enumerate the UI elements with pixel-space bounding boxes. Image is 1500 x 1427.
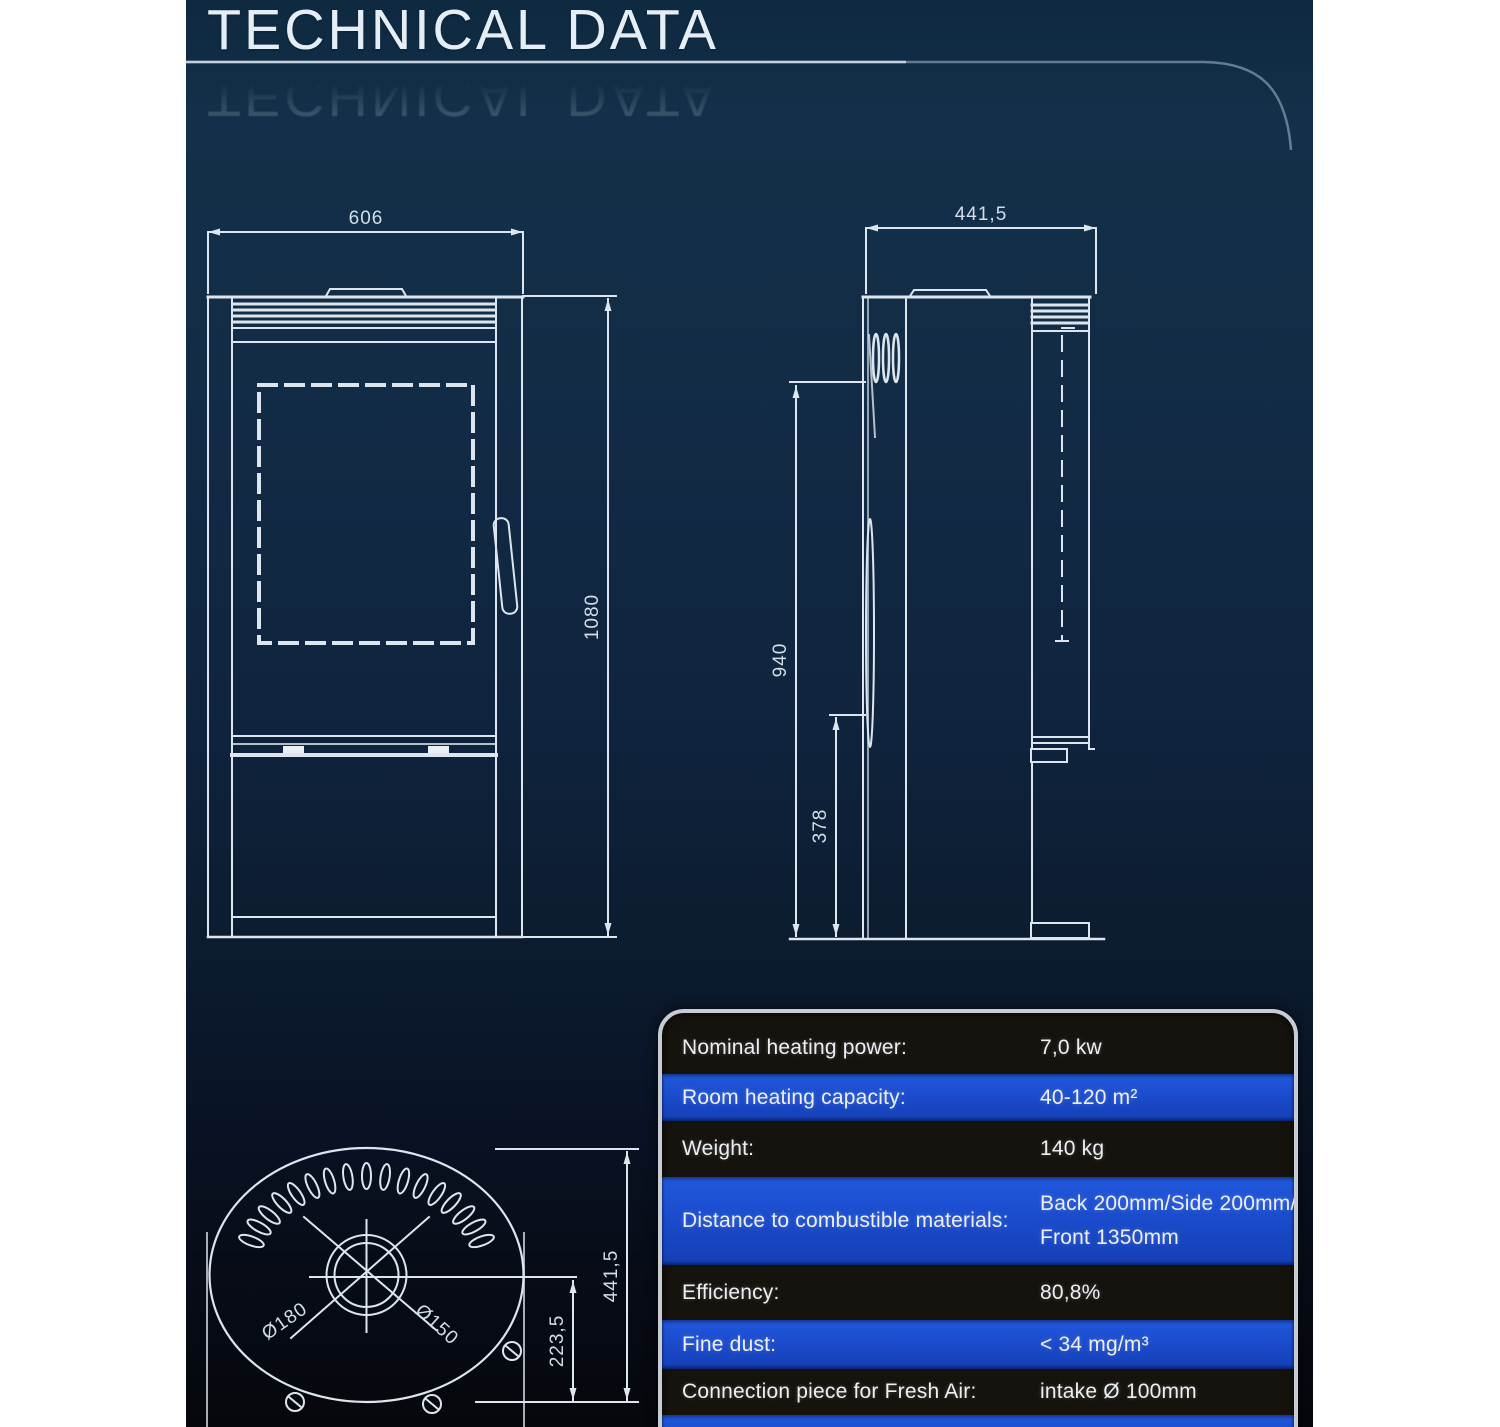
side-view-drawing: [790, 225, 1104, 940]
spec-value-line: < 34 mg/m³: [1040, 1328, 1149, 1362]
front-glass-dashed-outline: [259, 385, 473, 643]
spec-value: 140 kg: [1040, 1132, 1104, 1166]
spec-table: Nominal heating power: 7,0 kw Room heati…: [658, 1009, 1298, 1427]
spec-label: Weight:: [662, 1137, 1040, 1161]
side-upper-height-dimension-label: 940: [770, 643, 791, 678]
spec-value: 7,0 kw: [1040, 1031, 1102, 1065]
spec-row-fresh-air-connection: Connection piece for Fresh Air: intake Ø…: [662, 1369, 1294, 1415]
spec-row-room-heating-capacity: Room heating capacity: 40-120 m²: [662, 1074, 1294, 1121]
spec-row-nominal-heating-power: Nominal heating power: 7,0 kw: [662, 1022, 1294, 1074]
spec-row-weight: Weight: 140 kg: [662, 1121, 1294, 1177]
top-depth-dimension-label: 441,5: [601, 1250, 622, 1303]
datasheet-page: TECHNICAL DATA TECHNICAL DATA: [186, 0, 1313, 1427]
spec-label: Room heating capacity:: [662, 1086, 1040, 1110]
spec-row-distance-to-combustible-materials: Distance to combustible materials: Back …: [662, 1177, 1294, 1265]
spec-value-line: 7,0 kw: [1040, 1031, 1102, 1065]
spec-label: Fine dust:: [662, 1333, 1040, 1357]
front-view-drawing: [208, 229, 616, 938]
front-width-dimension-label: 606: [349, 208, 384, 229]
flue-offset-dimension-label: 223,5: [547, 1315, 568, 1368]
top-view-drawing: [207, 1148, 638, 1427]
spec-value-line: 40-120 m²: [1040, 1081, 1138, 1115]
spec-table-body: Nominal heating power: 7,0 kw Room heati…: [662, 1013, 1294, 1427]
spec-label: Efficiency:: [662, 1281, 1040, 1305]
spec-value: intake Ø 100mm: [1040, 1375, 1197, 1409]
spec-row-truncated: [662, 1415, 1294, 1427]
spec-value: Back 200mm/Side 200mm/ Front 1350mm: [1040, 1187, 1294, 1255]
spec-value-line: intake Ø 100mm: [1040, 1375, 1197, 1409]
flue-inner-diameter-label: Ø150: [411, 1300, 463, 1349]
spec-row-efficiency: Efficiency: 80,8%: [662, 1265, 1294, 1320]
spec-label: Connection piece for Fresh Air:: [662, 1380, 1040, 1404]
spec-label: Nominal heating power:: [662, 1036, 1040, 1060]
spec-label: Distance to combustible materials:: [662, 1209, 1040, 1233]
front-height-dimension-label: 1080: [582, 594, 603, 640]
spec-value-line: 140 kg: [1040, 1132, 1104, 1166]
side-lower-height-dimension-label: 378: [810, 809, 831, 844]
spec-value: < 34 mg/m³: [1040, 1328, 1149, 1362]
spec-value-line: 80,8%: [1040, 1276, 1101, 1310]
spec-value-line: Front 1350mm: [1040, 1221, 1294, 1255]
flue-outer-diameter-label: Ø180: [258, 1298, 311, 1344]
spec-value: 40-120 m²: [1040, 1081, 1138, 1115]
spec-row-fine-dust: Fine dust: < 34 mg/m³: [662, 1320, 1294, 1369]
spec-value: 80,8%: [1040, 1276, 1101, 1310]
spec-value-line: Back 200mm/Side 200mm/: [1040, 1187, 1294, 1221]
side-depth-dimension-label: 441,5: [955, 204, 1008, 225]
